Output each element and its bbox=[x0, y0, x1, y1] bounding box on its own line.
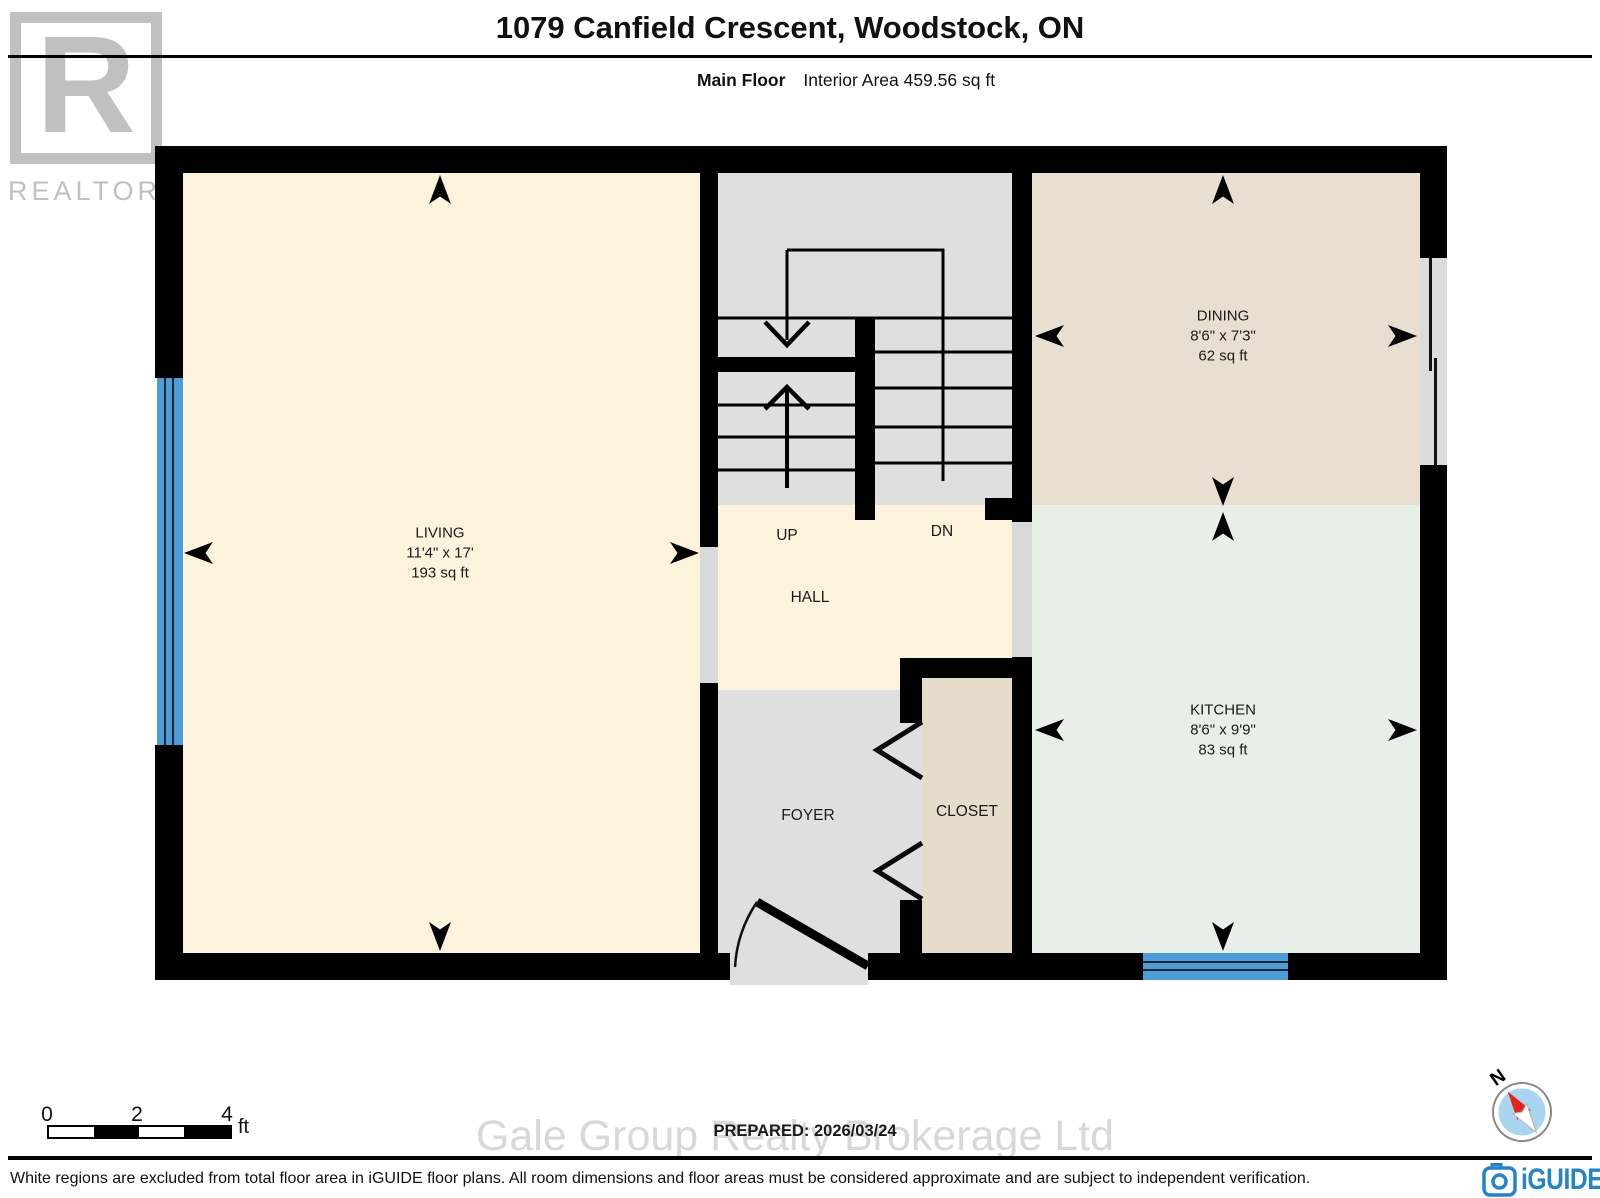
kitchen-window-mullion bbox=[1143, 969, 1288, 971]
dining-window-sash bbox=[1429, 258, 1432, 371]
scale-bar-segment bbox=[49, 1127, 94, 1137]
living-room-label: LIVING 11'4" x 17' 193 sq ft bbox=[406, 523, 474, 582]
dining-dims: 8'6" x 7'3" bbox=[1190, 326, 1256, 346]
dining-name: DINING bbox=[1190, 306, 1256, 326]
page-title: 1079 Canfield Crescent, Woodstock, ON bbox=[496, 10, 1085, 46]
scale-tick-2: 2 bbox=[131, 1103, 143, 1127]
stairs-down-label: DN bbox=[931, 523, 953, 541]
wall-exterior-right bbox=[1420, 465, 1447, 980]
compass-needle-north bbox=[1501, 1087, 1532, 1121]
kitchen-room-label: KITCHEN 8'6" x 9'9" 83 sq ft bbox=[1190, 700, 1256, 759]
wall-stairs-dining bbox=[1012, 173, 1032, 522]
wall-exterior-bottom bbox=[868, 953, 1143, 980]
wall-stair-landing bbox=[718, 357, 855, 372]
realtor-r-glyph: R bbox=[36, 16, 136, 154]
realtor-logo: R bbox=[10, 12, 162, 164]
living-area: 193 sq ft bbox=[406, 563, 474, 583]
wall-stub-hall bbox=[985, 498, 1032, 520]
compass-north-label: N bbox=[1487, 1065, 1510, 1090]
wall-exterior-left bbox=[155, 146, 183, 378]
interior-area-label: Interior Area 459.56 sq ft bbox=[803, 70, 995, 91]
compass-needle-south bbox=[1513, 1104, 1544, 1138]
realtor-wordmark: REALTOR® bbox=[8, 176, 175, 207]
realtor-wordmark-text: REALTOR bbox=[8, 176, 161, 206]
foyer-label: FOYER bbox=[781, 807, 834, 825]
scale-unit-label: ft bbox=[238, 1116, 249, 1139]
kitchen-name: KITCHEN bbox=[1190, 700, 1256, 720]
kitchen-window bbox=[1143, 953, 1288, 980]
kitchen-area: 83 sq ft bbox=[1190, 740, 1256, 760]
scale-tick-4: 4 bbox=[221, 1103, 233, 1127]
scale-bar-segment bbox=[184, 1127, 230, 1137]
scale-bar-segment bbox=[94, 1127, 139, 1137]
footer-rule bbox=[8, 1156, 1592, 1160]
dining-area: 62 sq ft bbox=[1190, 346, 1256, 366]
living-window-mullion bbox=[164, 378, 166, 745]
wall-exterior-top bbox=[155, 146, 1447, 173]
living-window-mullion bbox=[172, 378, 174, 745]
wall-exterior-bottom bbox=[155, 953, 730, 980]
hall-kitchen-opening bbox=[1012, 522, 1032, 657]
floor-label: Main Floor bbox=[697, 70, 785, 91]
wall-living-foyer bbox=[700, 683, 718, 953]
living-hall-opening bbox=[700, 547, 718, 683]
wall-exterior-right bbox=[1420, 146, 1447, 258]
closet-label: CLOSET bbox=[936, 803, 998, 821]
wall-stair-divider bbox=[855, 318, 875, 520]
entry-alcove-area bbox=[730, 953, 868, 985]
floor-subtitle: Main Floor Interior Area 459.56 sq ft bbox=[697, 70, 995, 91]
scale-bar-segment bbox=[139, 1127, 184, 1137]
wall-living-hall bbox=[700, 173, 718, 547]
wall-closet-kitchen bbox=[1012, 657, 1032, 980]
iguide-wordmark: iGUIDE bbox=[1521, 1163, 1600, 1197]
compass-icon: N bbox=[1468, 1053, 1562, 1153]
disclaimer-text: White regions are excluded from total fl… bbox=[10, 1170, 1310, 1188]
stairs-up-label: UP bbox=[776, 527, 798, 545]
dining-window-sash bbox=[1434, 358, 1437, 465]
living-name: LIVING bbox=[406, 523, 474, 543]
dining-room-label: DINING 8'6" x 7'3" 62 sq ft bbox=[1190, 306, 1256, 365]
wall-exterior-left bbox=[155, 745, 183, 980]
floorplan-page: R REALTOR® 1079 Canfield Crescent, Woods… bbox=[0, 0, 1600, 1198]
kitchen-dims: 8'6" x 9'9" bbox=[1190, 720, 1256, 740]
living-window bbox=[157, 378, 183, 745]
living-dims: 11'4" x 17' bbox=[406, 543, 474, 563]
kitchen-window-mullion bbox=[1143, 961, 1288, 963]
hall-label: HALL bbox=[791, 589, 830, 607]
header-rule bbox=[8, 55, 1592, 58]
dining-window bbox=[1420, 258, 1447, 465]
iguide-camera-icon bbox=[1484, 1165, 1515, 1196]
scale-tick-0: 0 bbox=[41, 1103, 53, 1127]
scale-bar bbox=[47, 1125, 232, 1139]
wall-closet-left bbox=[900, 658, 922, 723]
wall-closet-left bbox=[900, 900, 922, 953]
prepared-date: PREPARED: 2026/03/24 bbox=[713, 1122, 896, 1141]
